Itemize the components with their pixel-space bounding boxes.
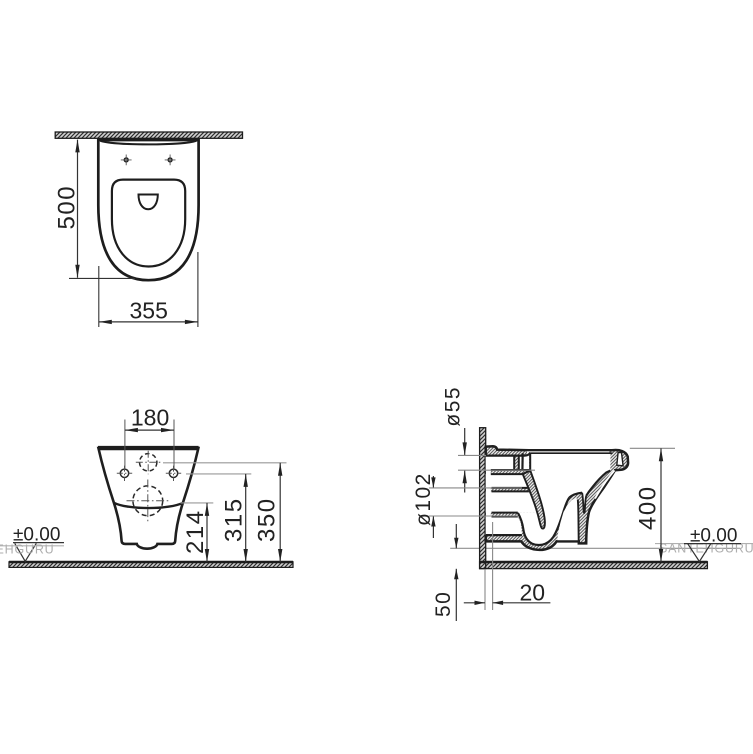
svg-text:50: 50 [432,591,455,617]
svg-text:350: 350 [254,497,281,542]
svg-text:20: 20 [520,580,546,606]
svg-text:±0.00: ±0.00 [690,526,737,547]
svg-text:ø55: ø55 [442,386,465,427]
svg-text:315: 315 [220,497,247,542]
svg-text:ø102: ø102 [412,472,435,526]
svg-text:180: 180 [131,405,169,431]
svg-text:214: 214 [182,509,209,554]
svg-text:400: 400 [635,485,662,530]
svg-text:500: 500 [54,185,81,230]
svg-text:355: 355 [130,298,168,324]
svg-text:SANTEHGURU: SANTEHGURU [0,543,55,557]
